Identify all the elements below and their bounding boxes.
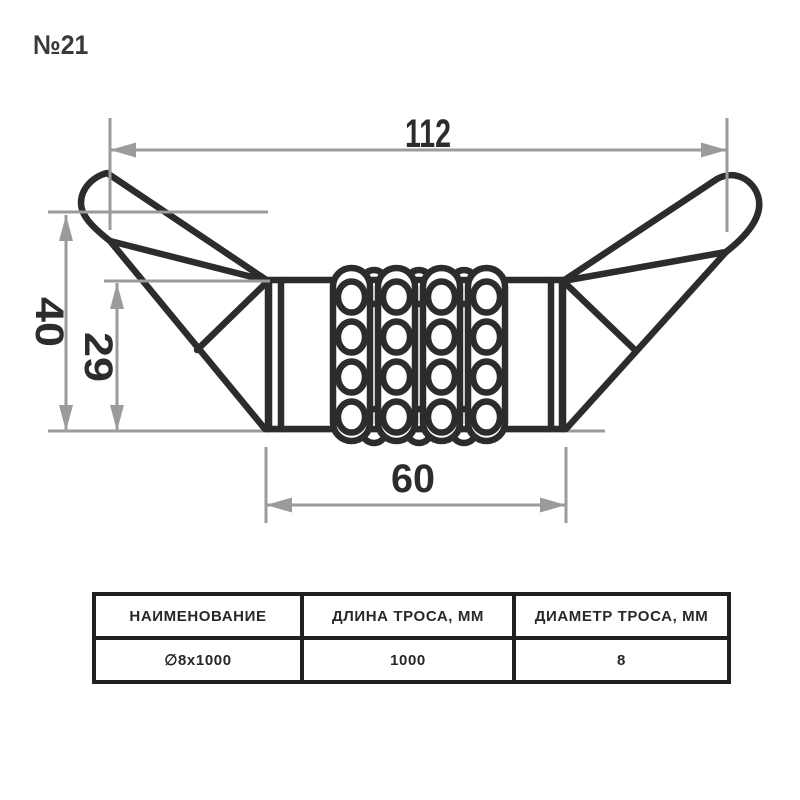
dimension-label-112: 112 — [405, 112, 451, 156]
spec-table-data-row: ∅8x1000 1000 8 — [94, 638, 729, 682]
arrowhead-right — [701, 143, 727, 158]
arrowhead-right — [540, 498, 566, 513]
spec-cell-cable-diameter: 8 — [514, 638, 729, 682]
arrowhead-left — [266, 498, 292, 513]
dimension-label-60: 60 — [391, 457, 435, 501]
spec-cell-name: ∅8x1000 — [94, 638, 302, 682]
arrowhead-up — [110, 283, 124, 309]
spec-table-header-row: НАИМЕНОВАНИЕ ДЛИНА ТРОСА, ММ ДИАМЕТР ТРО… — [94, 594, 729, 638]
spec-table-header-cable-diameter: ДИАМЕТР ТРОСА, ММ — [514, 594, 729, 638]
spec-cell-cable-length: 1000 — [302, 638, 514, 682]
arrowhead-left — [110, 143, 136, 158]
spec-table: НАИМЕНОВАНИЕ ДЛИНА ТРОСА, ММ ДИАМЕТР ТРО… — [92, 592, 731, 684]
spec-table-header-name: НАИМЕНОВАНИЕ — [94, 594, 302, 638]
drawing-sheet: №21 — [0, 0, 800, 800]
coil-columns — [333, 268, 505, 441]
arrowhead-down — [59, 405, 73, 431]
lock-body-right — [563, 175, 759, 429]
spec-table-header-cable-length: ДЛИНА ТРОСА, ММ — [302, 594, 514, 638]
dimension-label-40: 40 — [27, 297, 71, 347]
arrowhead-down — [110, 405, 124, 431]
arrowhead-up — [59, 215, 73, 241]
dimension-label-29: 29 — [76, 332, 120, 382]
